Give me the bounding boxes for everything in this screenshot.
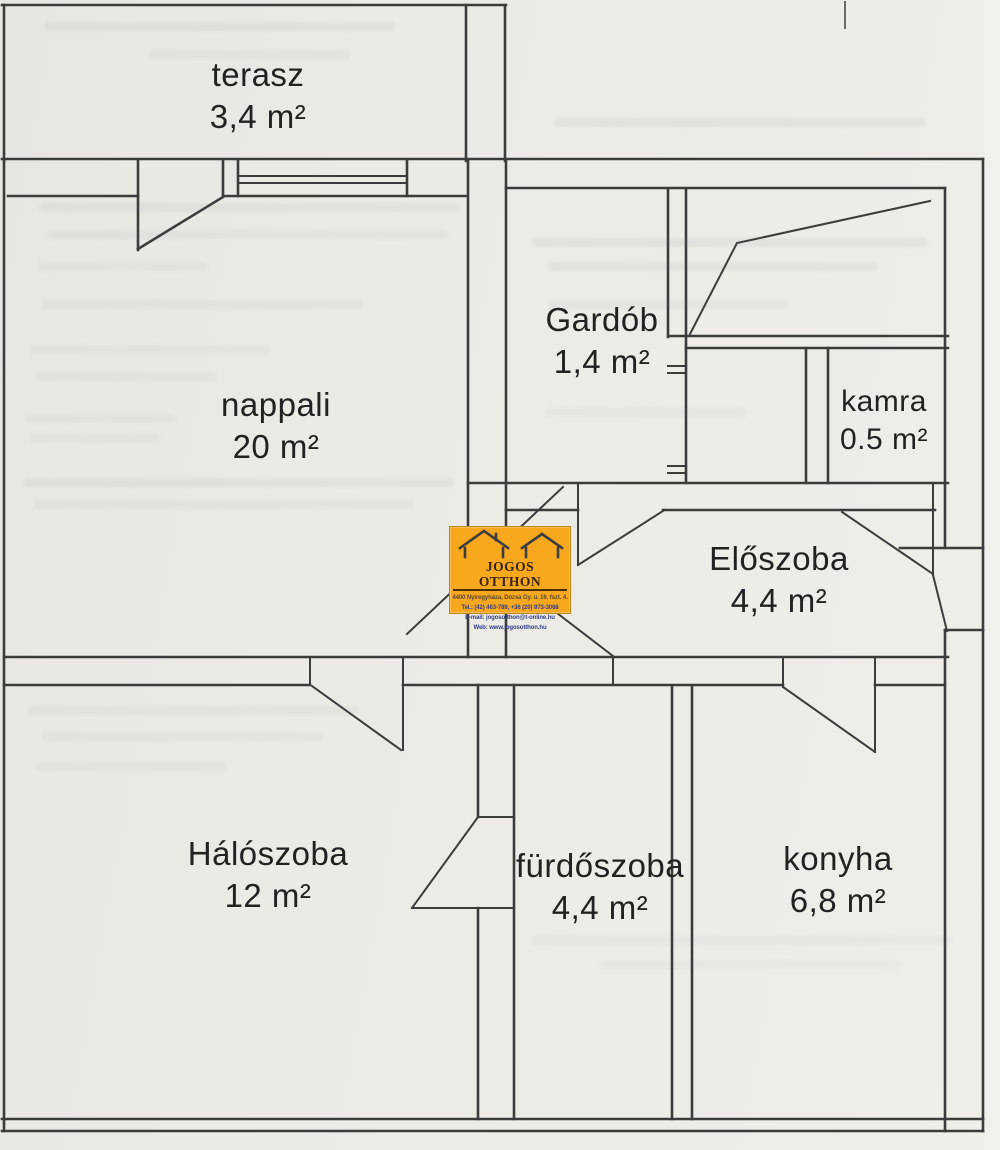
bleed-through-smudge: [48, 230, 448, 239]
room-name: nappali: [166, 386, 386, 425]
logo-address: 4400 Nyíregyháza, Dózsa Gy. u. 16. fszt.…: [450, 593, 570, 603]
bleed-through-smudge: [42, 732, 322, 741]
floor-plan-scan: terasz 3,4 m² nappali 20 m² Gardób 1,4 m…: [0, 0, 1000, 1150]
bleed-through-smudge: [24, 478, 454, 487]
bleed-through-smudge: [548, 262, 878, 271]
room-name: terasz: [148, 56, 368, 95]
bleed-through-smudge: [600, 960, 900, 969]
bleed-through-smudge: [532, 936, 952, 945]
room-label-haloszoba: Hálószoba 12 m²: [158, 835, 378, 916]
room-label-gardob: Gardób 1,4 m²: [492, 301, 712, 382]
bleed-through-smudge: [45, 22, 395, 31]
bleed-through-smudge: [548, 300, 788, 309]
bleed-through-smudge: [28, 706, 358, 715]
bleed-through-smudge: [36, 372, 216, 381]
room-area: 0.5 m²: [774, 422, 994, 457]
logo-web: Web: www.jogosotthon.hu: [450, 623, 570, 633]
bleed-through-smudge: [36, 762, 226, 771]
room-name: kamra: [774, 384, 994, 419]
room-name: konyha: [728, 840, 948, 879]
room-label-konyha: konyha 6,8 m²: [728, 840, 948, 921]
bleed-through-smudge: [546, 408, 746, 417]
room-area: 4,4 m²: [669, 582, 889, 621]
logo-title: JOGOS OTTHON: [453, 559, 567, 591]
room-area: 4,4 m²: [490, 889, 710, 928]
room-name: Hálószoba: [158, 835, 378, 874]
room-area: 6,8 m²: [728, 882, 948, 921]
room-label-terasz: terasz 3,4 m²: [148, 56, 368, 137]
room-label-furdoszoba: fürdőszoba 4,4 m²: [490, 847, 710, 928]
logo-houses-icon: [450, 527, 572, 559]
bleed-through-smudge: [42, 300, 362, 309]
bleed-through-smudge: [150, 50, 350, 59]
bleed-through-smudge: [532, 238, 927, 247]
logo-phone: Tel.: (42) 463-789, +36 (20) 973-3068: [450, 603, 570, 613]
bleed-through-smudge: [40, 203, 460, 212]
room-area: 3,4 m²: [148, 98, 368, 137]
room-name: Előszoba: [669, 540, 889, 579]
room-area: 20 m²: [166, 428, 386, 467]
bleed-through-smudge: [26, 414, 176, 423]
bleed-through-smudge: [30, 345, 270, 354]
bleed-through-smudge: [30, 434, 160, 443]
bleed-through-smudge: [34, 500, 414, 509]
room-area: 12 m²: [158, 877, 378, 916]
room-name: fürdőszoba: [490, 847, 710, 886]
entrance-door-and-right-wall: [900, 188, 983, 1131]
room-label-kamra: kamra 0.5 m²: [774, 384, 994, 458]
room-label-eloszoba: Előszoba 4,4 m²: [669, 540, 889, 621]
bleed-through-smudge: [555, 118, 925, 127]
logo-email: E-mail: jogosotthon@t-online.hu: [450, 613, 570, 623]
room-label-nappali: nappali 20 m²: [166, 386, 386, 467]
room-area: 1,4 m²: [492, 343, 712, 382]
agency-logo: JOGOS OTTHON 4400 Nyíregyháza, Dózsa Gy.…: [449, 526, 571, 614]
bleed-through-smudge: [38, 262, 208, 271]
